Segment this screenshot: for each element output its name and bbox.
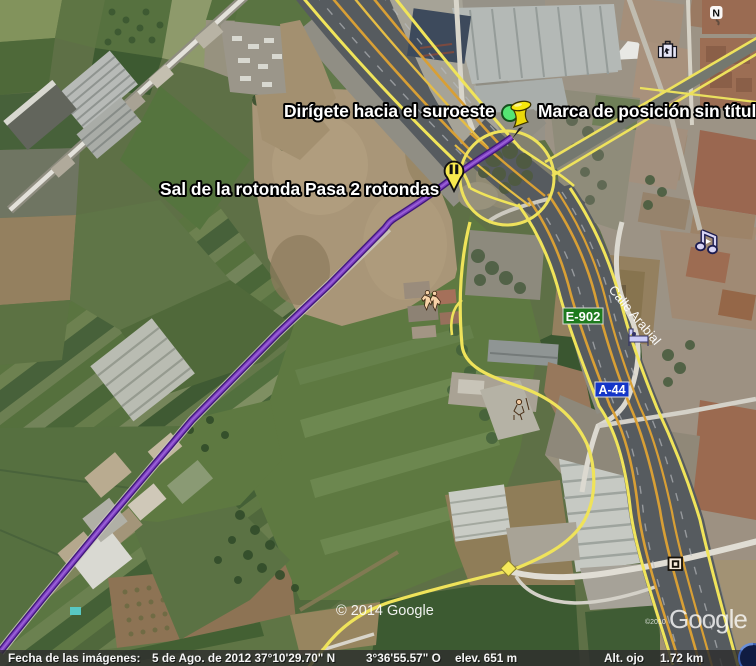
svg-text:Dirígete hacia el suroeste: Dirígete hacia el suroeste xyxy=(284,101,495,121)
svg-text:3°36'55.57" O: 3°36'55.57" O xyxy=(366,651,441,665)
svg-text:E-902: E-902 xyxy=(566,309,601,324)
svg-text:Marca de posición sin títul: Marca de posición sin títul xyxy=(538,101,756,121)
svg-text:elev. 651 m: elev. 651 m xyxy=(455,651,517,665)
svg-text:Fecha de las imágenes:: Fecha de las imágenes: xyxy=(8,651,140,665)
svg-text:Alt. ojo: Alt. ojo xyxy=(604,651,644,665)
svg-text:©2010: ©2010 xyxy=(645,618,666,626)
svg-text:Google: Google xyxy=(669,604,747,634)
svg-text:© 2014 Google: © 2014 Google xyxy=(336,603,434,619)
svg-text:5 de Ago. de 2012 37°10'29.70": 5 de Ago. de 2012 37°10'29.70" N xyxy=(152,651,335,665)
svg-text:N: N xyxy=(712,8,720,20)
svg-text:Sal de la rotonda Pasa 2 roton: Sal de la rotonda Pasa 2 rotondas xyxy=(160,179,439,199)
svg-text:1.72 km: 1.72 km xyxy=(660,651,703,665)
svg-text:A-44: A-44 xyxy=(598,383,625,397)
